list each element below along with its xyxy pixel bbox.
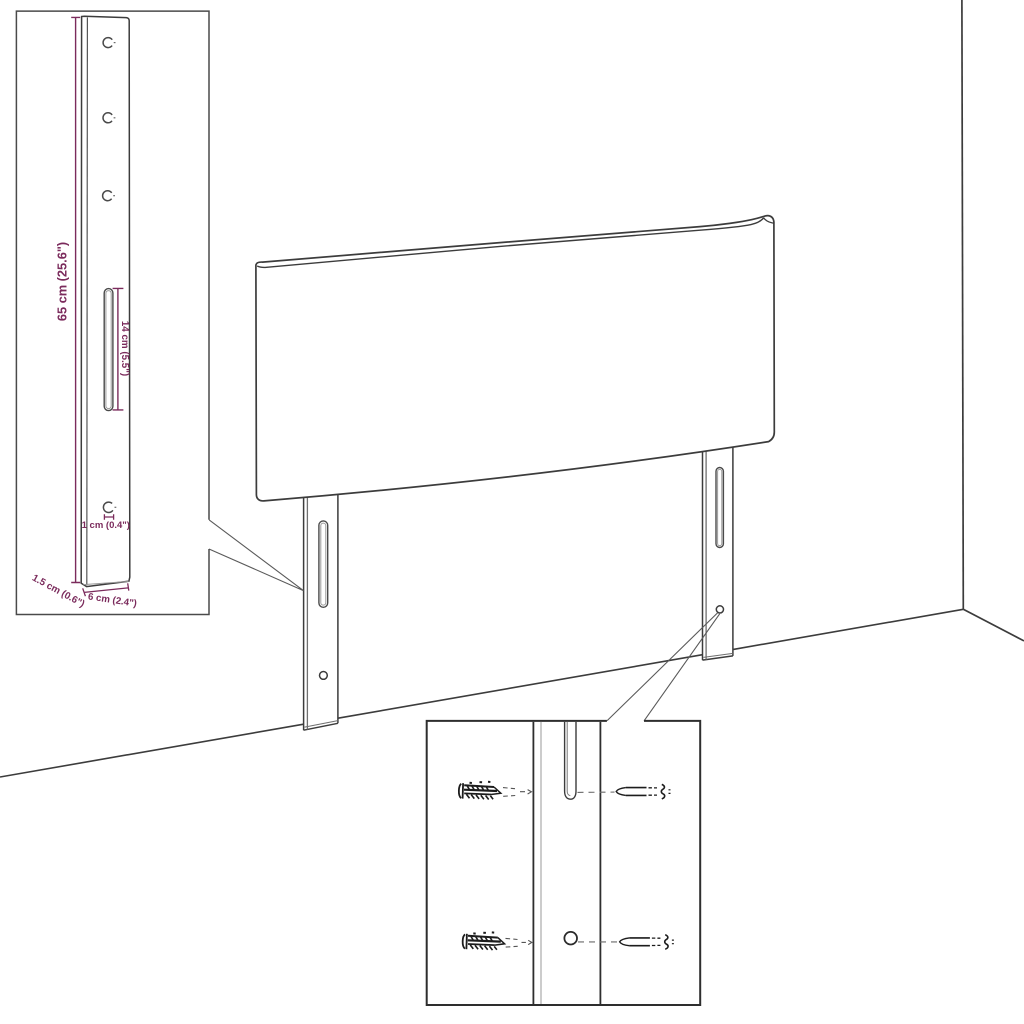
svg-text:14 cm (5.5"): 14 cm (5.5") — [119, 321, 130, 376]
svg-text:1 cm (0.4"): 1 cm (0.4") — [82, 520, 130, 531]
svg-text:65 cm (25.6"): 65 cm (25.6") — [54, 242, 69, 321]
